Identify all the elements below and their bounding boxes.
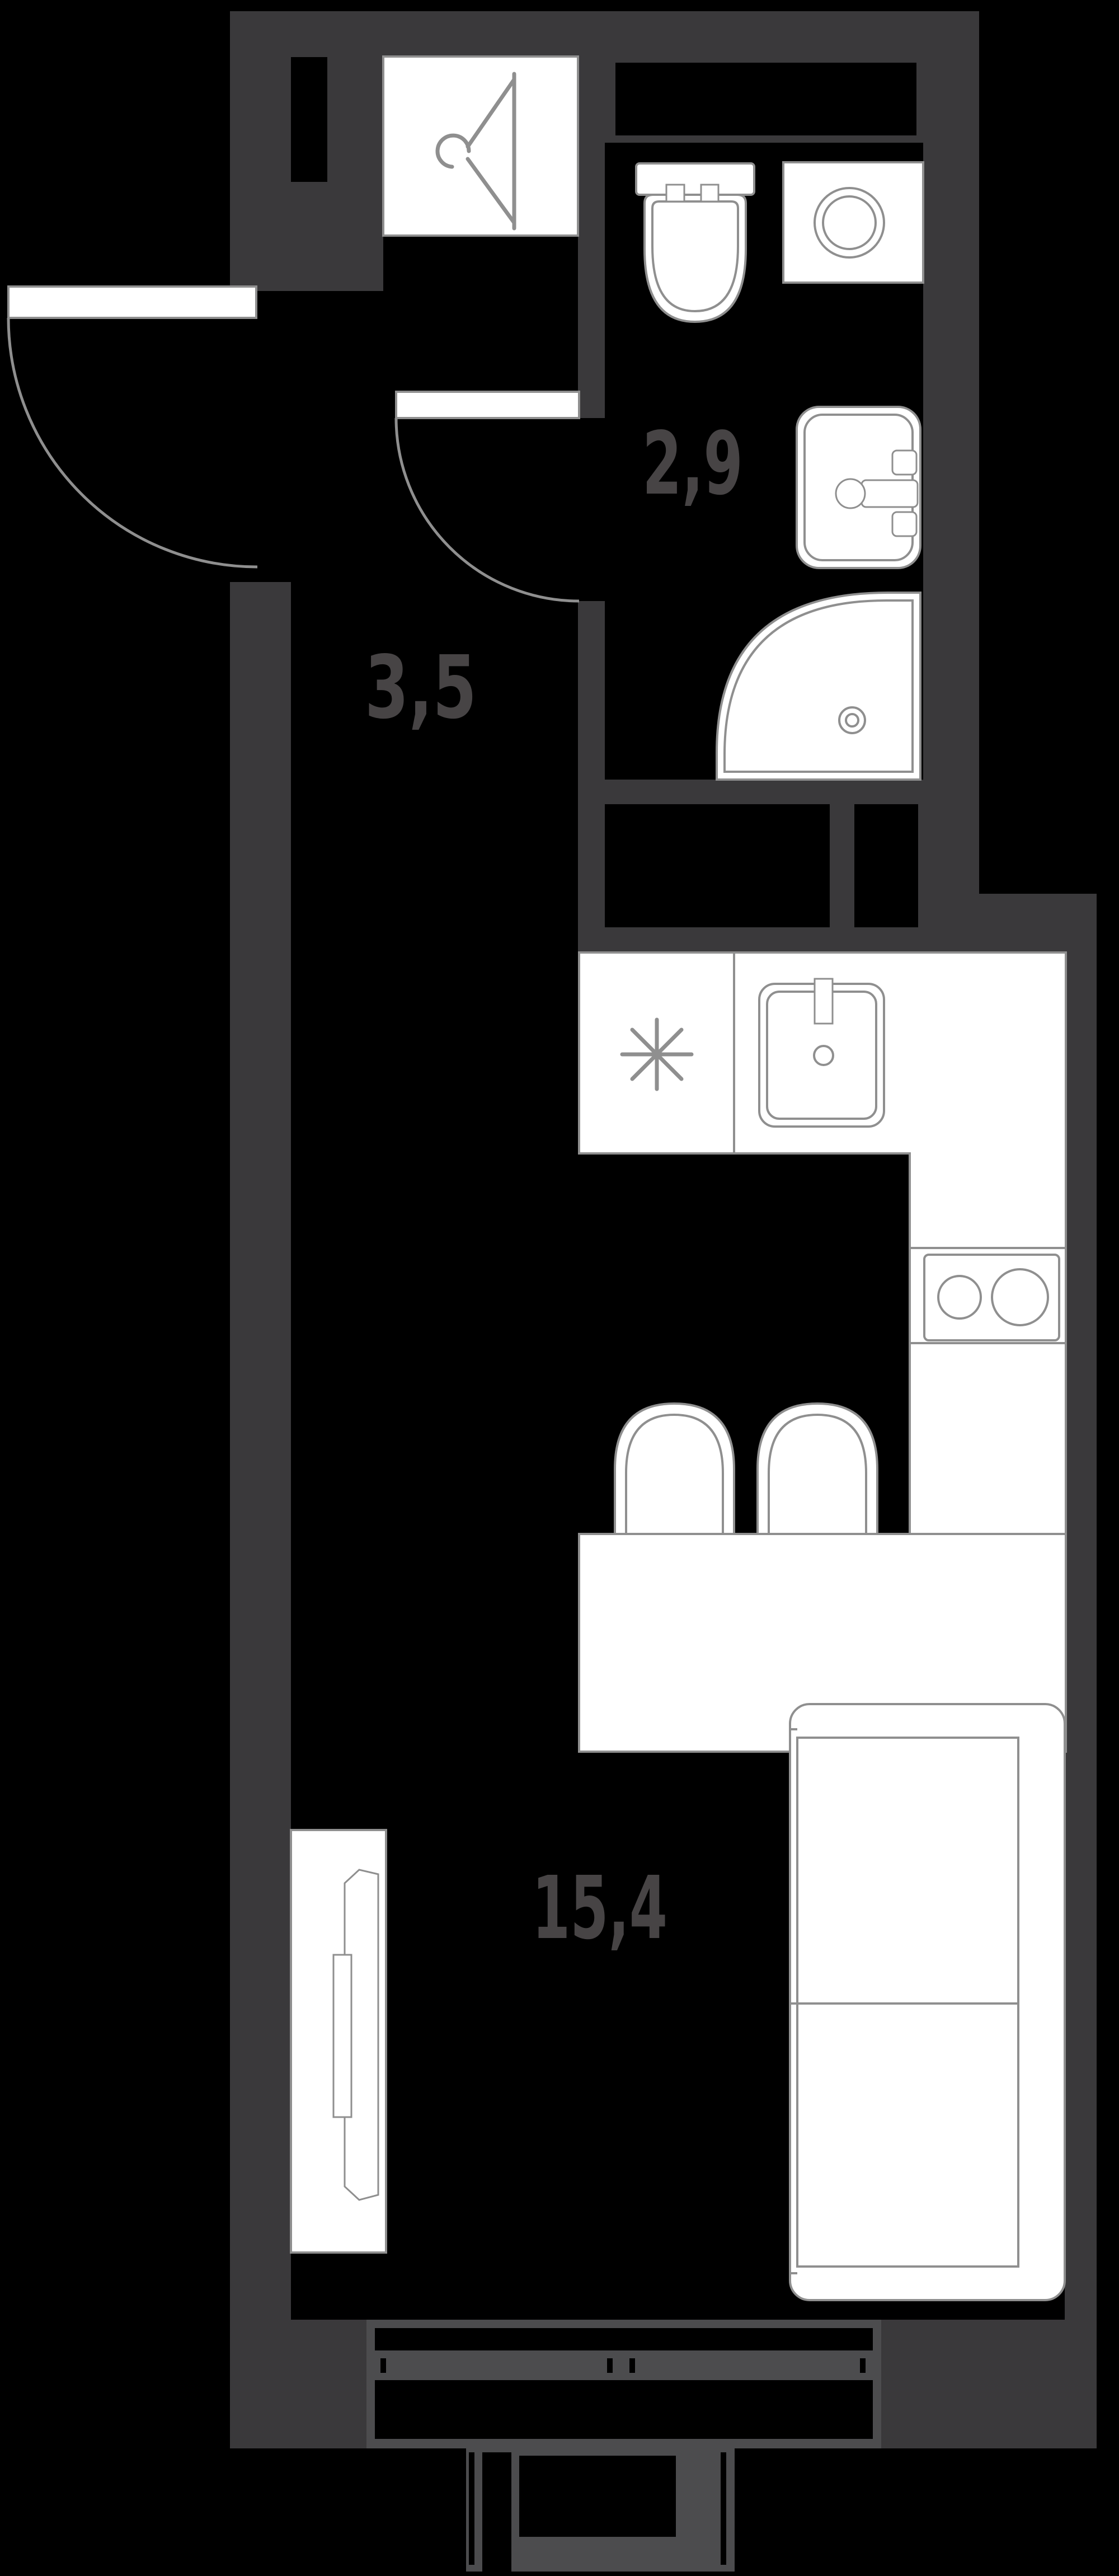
washbasin-icon <box>797 407 920 568</box>
entry-closet <box>383 57 578 236</box>
wall-segment <box>578 780 979 804</box>
refrigerator-symbol-icon <box>622 1020 692 1089</box>
wall-segment <box>578 927 923 952</box>
toilet-icon <box>636 163 754 322</box>
wall-segment <box>230 2320 366 2448</box>
balcony <box>466 2444 735 2572</box>
shower-icon <box>717 593 920 780</box>
wall-segment <box>881 2320 1097 2448</box>
window <box>366 2320 881 2448</box>
door-leaf <box>396 392 579 418</box>
hallway-area-label: 3,5 <box>365 637 477 738</box>
wall-segment <box>578 601 605 804</box>
door-leaf <box>8 287 256 318</box>
door-swing-arc <box>8 318 257 567</box>
wardrobe <box>291 1830 386 2253</box>
bathroom-area-label: 2,9 <box>642 413 743 514</box>
floor-plan: 2,9 3,5 15,4 <box>0 0 1119 2576</box>
wall-segment <box>578 804 605 927</box>
washing-machine-icon <box>783 162 923 283</box>
door-swing-arc <box>396 418 579 601</box>
floor-plan-drawing: 2,9 3,5 15,4 <box>0 0 1119 2576</box>
sofa <box>790 1704 1065 2300</box>
kitchen-sink-icon <box>759 979 884 1127</box>
bathroom-door <box>396 392 579 601</box>
bar-stool <box>615 1404 734 1534</box>
entrance-door <box>8 287 257 567</box>
wall-segment <box>1065 952 1097 2320</box>
wall-segment <box>923 894 1097 952</box>
wall-segment <box>230 11 979 57</box>
living-kitchen-area-label: 15,4 <box>532 1857 667 1959</box>
bar-stool <box>758 1404 877 1534</box>
wall-segment <box>830 804 854 927</box>
wall-segment <box>230 582 291 2448</box>
wall-segment <box>923 11 979 894</box>
wall-segment <box>578 57 605 418</box>
